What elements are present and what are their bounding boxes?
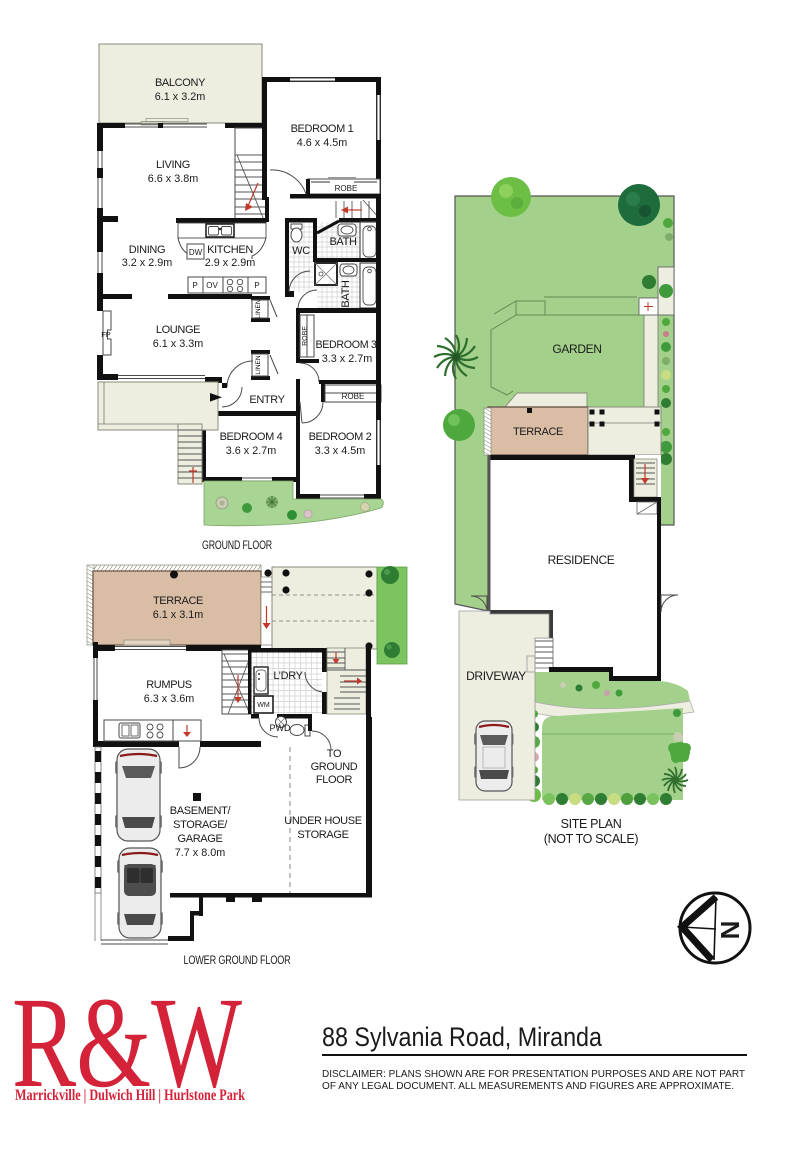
svg-text:2.9 x 2.9m: 2.9 x 2.9m <box>205 257 255 269</box>
svg-text:GARDEN: GARDEN <box>552 342 601 356</box>
svg-text:P: P <box>192 281 197 290</box>
svg-text:7.7 x 8.0m: 7.7 x 8.0m <box>175 847 225 859</box>
svg-text:3.2 x 2.9m: 3.2 x 2.9m <box>122 257 172 269</box>
svg-text:N: N <box>715 921 745 940</box>
svg-text:STORAGE: STORAGE <box>297 829 348 841</box>
svg-text:DISCLAIMER: PLANS SHOWN ARE F: DISCLAIMER: PLANS SHOWN ARE FOR PRESENTA… <box>322 1069 746 1080</box>
svg-text:GROUND FLOOR: GROUND FLOOR <box>202 540 272 552</box>
svg-text:LINEN: LINEN <box>255 299 262 318</box>
svg-text:DINING: DINING <box>129 244 165 256</box>
svg-text:LIVING: LIVING <box>156 159 190 171</box>
svg-text:6.6 x 3.8m: 6.6 x 3.8m <box>148 173 198 185</box>
svg-text:BATH: BATH <box>329 236 357 248</box>
svg-text:3.6 x 2.7m: 3.6 x 2.7m <box>226 445 276 457</box>
svg-text:GROUND: GROUND <box>311 761 358 773</box>
svg-text:BATH: BATH <box>340 280 352 308</box>
svg-text:DW: DW <box>189 248 203 257</box>
svg-text:TERRACE: TERRACE <box>153 595 203 607</box>
svg-text:TO: TO <box>327 748 342 760</box>
svg-text:3.3 x 2.7m: 3.3 x 2.7m <box>322 353 372 365</box>
svg-text:L’DRY: L’DRY <box>273 670 303 682</box>
svg-text:BEDROOM 3: BEDROOM 3 <box>316 339 377 351</box>
svg-text:SITE PLAN: SITE PLAN <box>561 817 622 831</box>
svg-text:3.3 x 4.5m: 3.3 x 4.5m <box>315 445 365 457</box>
svg-text:DRIVEWAY: DRIVEWAY <box>466 669 526 683</box>
svg-text:FLOOR: FLOOR <box>316 774 353 786</box>
svg-text:RUMPUS: RUMPUS <box>146 679 192 691</box>
svg-text:ROBE: ROBE <box>342 392 365 401</box>
svg-text:6.3 x 3.6m: 6.3 x 3.6m <box>144 693 194 705</box>
svg-text:LINEN: LINEN <box>255 355 262 374</box>
svg-text:ENTRY: ENTRY <box>249 394 285 406</box>
svg-text:GARAGE: GARAGE <box>178 833 223 845</box>
svg-text:WM: WM <box>257 702 270 709</box>
svg-text:BEDROOM 2: BEDROOM 2 <box>309 431 372 443</box>
svg-text:BEDROOM 4: BEDROOM 4 <box>220 431 283 443</box>
svg-text:BEDROOM 1: BEDROOM 1 <box>291 123 354 135</box>
svg-text:OF ANY LEGAL DOCUMENT. ALL MEA: OF ANY LEGAL DOCUMENT. ALL MEASUREMENTS … <box>322 1081 734 1092</box>
svg-text:KITCHEN: KITCHEN <box>207 244 253 256</box>
svg-text:OV: OV <box>206 281 218 290</box>
svg-text:BASEMENT/: BASEMENT/ <box>170 805 232 817</box>
svg-text:ROBE: ROBE <box>335 184 358 193</box>
svg-text:6.1 x 3.2m: 6.1 x 3.2m <box>155 91 205 103</box>
svg-text:6.1 x 3.1m: 6.1 x 3.1m <box>153 609 203 621</box>
svg-text:PWD: PWD <box>270 723 291 733</box>
svg-text:Marrickville | Dulwich Hill |: Marrickville | Dulwich Hill | Hurlstone … <box>15 1087 245 1104</box>
svg-text:BALCONY: BALCONY <box>155 77 206 89</box>
svg-text:4.6 x 4.5m: 4.6 x 4.5m <box>297 137 347 149</box>
svg-text:88 Sylvania Road, Miranda: 88 Sylvania Road, Miranda <box>322 1022 603 1052</box>
svg-text:P: P <box>254 281 259 290</box>
svg-text:ROBE: ROBE <box>302 326 309 346</box>
svg-text:TERRACE: TERRACE <box>513 426 563 438</box>
svg-text:LOWER GROUND FLOOR: LOWER GROUND FLOOR <box>184 955 291 967</box>
svg-text:(NOT TO SCALE): (NOT TO SCALE) <box>544 832 639 846</box>
svg-text:STORAGE/: STORAGE/ <box>173 819 228 831</box>
svg-text:WC: WC <box>292 245 310 257</box>
svg-text:LOUNGE: LOUNGE <box>156 324 200 336</box>
svg-text:6.1 x 3.3m: 6.1 x 3.3m <box>153 338 203 350</box>
svg-text:UNDER HOUSE: UNDER HOUSE <box>284 815 361 827</box>
svg-text:RESIDENCE: RESIDENCE <box>548 553 615 567</box>
svg-text:FP: FP <box>101 330 111 339</box>
